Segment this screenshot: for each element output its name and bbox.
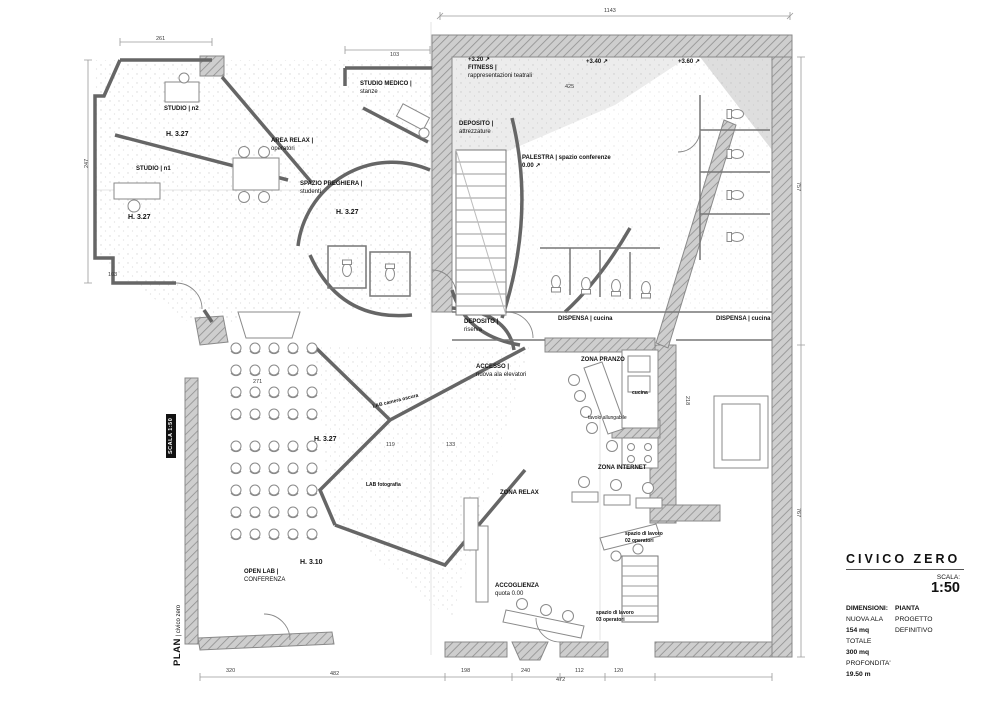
- dimensions-column: DIMENSIONI:NUOVA ALA154 mqTOTALE300 mqPR…: [846, 603, 895, 680]
- title-block-line: PROGETTO: [895, 614, 964, 625]
- title-block-line: 19.50 m: [846, 669, 895, 680]
- project-title: CIVICO ZERO: [846, 552, 964, 570]
- title-block-line: DEFINITIVO: [895, 625, 964, 636]
- plan-caption-title: PLAN: [172, 638, 183, 666]
- title-block-line: TOTALE: [846, 636, 895, 647]
- title-block-line: 300 mq: [846, 647, 895, 658]
- title-block-line: 154 mq: [846, 625, 895, 636]
- scale-badge: SCALA 1:50: [166, 414, 176, 458]
- title-block: CIVICO ZERO SCALA: 1:50 DIMENSIONI:NUOVA…: [846, 552, 964, 680]
- title-block-line: DIMENSIONI:: [846, 603, 895, 614]
- floor-plan-sheet: STUDIO | n2H. 3.27STUDIO | n1H. 3.27AREA…: [0, 0, 992, 702]
- plan-caption-sub: | civico zero: [176, 605, 182, 637]
- plan-caption: PLAN | civico zero: [172, 605, 183, 666]
- title-block-line: PROFONDITA': [846, 658, 895, 669]
- title-block-line: NUOVA ALA: [846, 614, 895, 625]
- open-lab-chairs: [231, 343, 317, 540]
- scale-value: 1:50: [846, 581, 964, 596]
- document-column: PIANTAPROGETTODEFINITIVO: [895, 603, 964, 680]
- floor-plan-drawing: [0, 0, 992, 702]
- stairs-hall: [456, 150, 506, 315]
- title-block-line: PIANTA: [895, 603, 964, 614]
- stairs-reception: [622, 556, 658, 622]
